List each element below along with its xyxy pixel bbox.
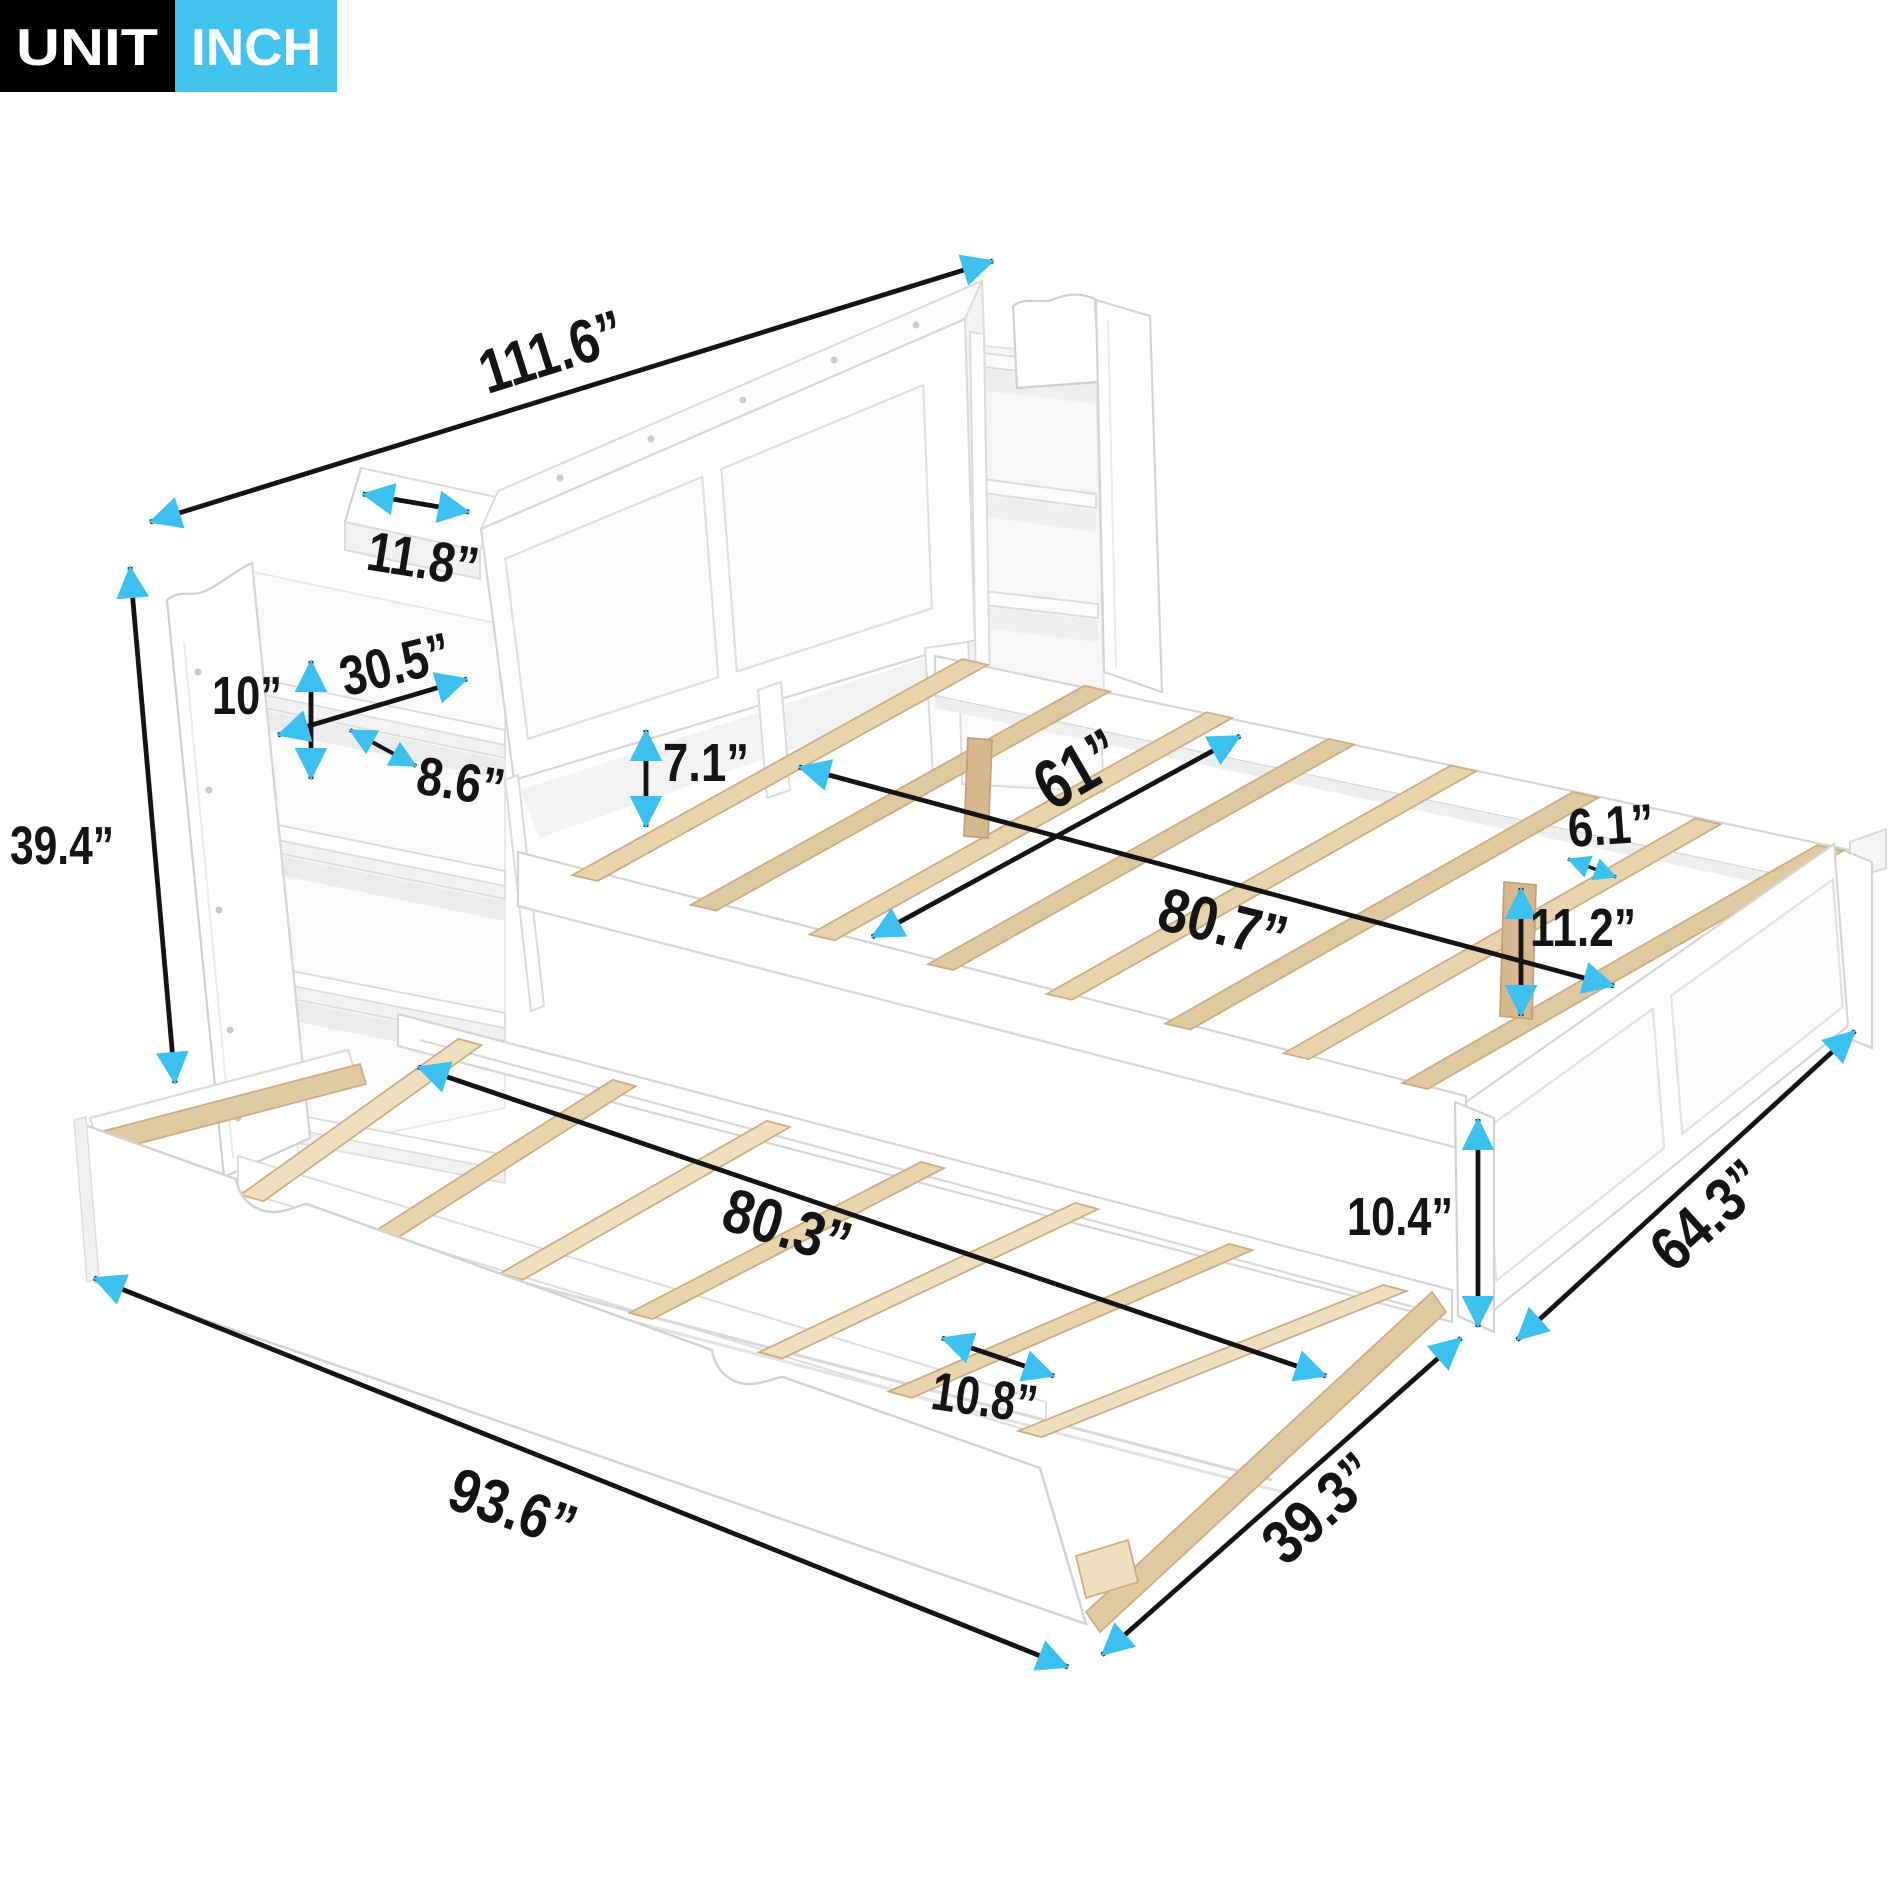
svg-text:INCH: INCH [191,19,321,77]
svg-text:UNIT: UNIT [16,19,158,77]
svg-text:6.1”: 6.1” [1566,793,1656,859]
svg-text:39.4”: 39.4” [10,816,114,876]
svg-text:11.2”: 11.2” [1530,898,1636,958]
svg-text:10.4”: 10.4” [1347,1187,1453,1247]
svg-text:10”: 10” [212,666,282,726]
svg-text:7.1”: 7.1” [663,733,749,793]
